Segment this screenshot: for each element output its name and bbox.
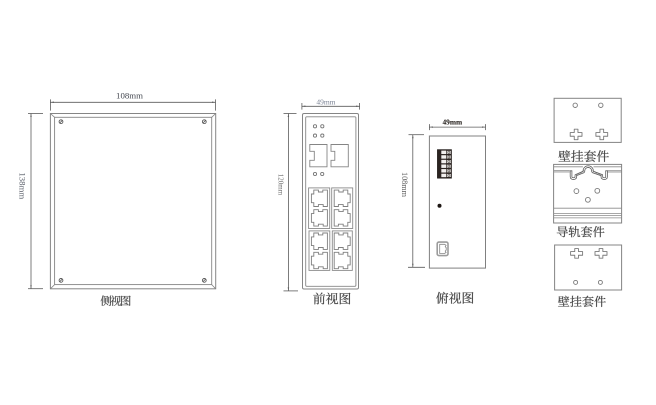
svg-text:108mm: 108mm [400,172,409,198]
svg-text:49mm: 49mm [316,98,335,107]
svg-text:49mm: 49mm [442,118,463,127]
svg-text:108mm: 108mm [116,91,143,101]
svg-text:120mm: 120mm [276,174,284,196]
svg-text:138mm: 138mm [18,172,28,199]
